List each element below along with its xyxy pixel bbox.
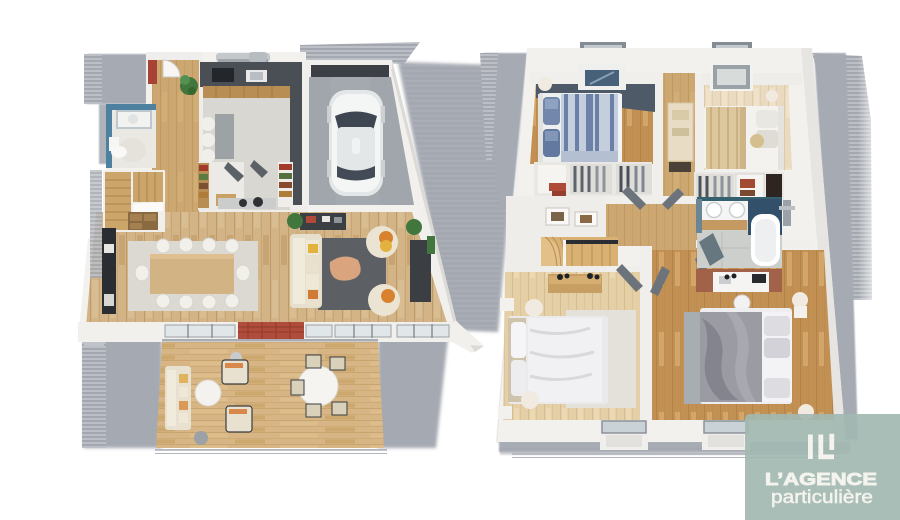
svg-text:particulière: particulière [771, 487, 873, 507]
svg-text:L’AGENCE: L’AGENCE [765, 469, 877, 489]
